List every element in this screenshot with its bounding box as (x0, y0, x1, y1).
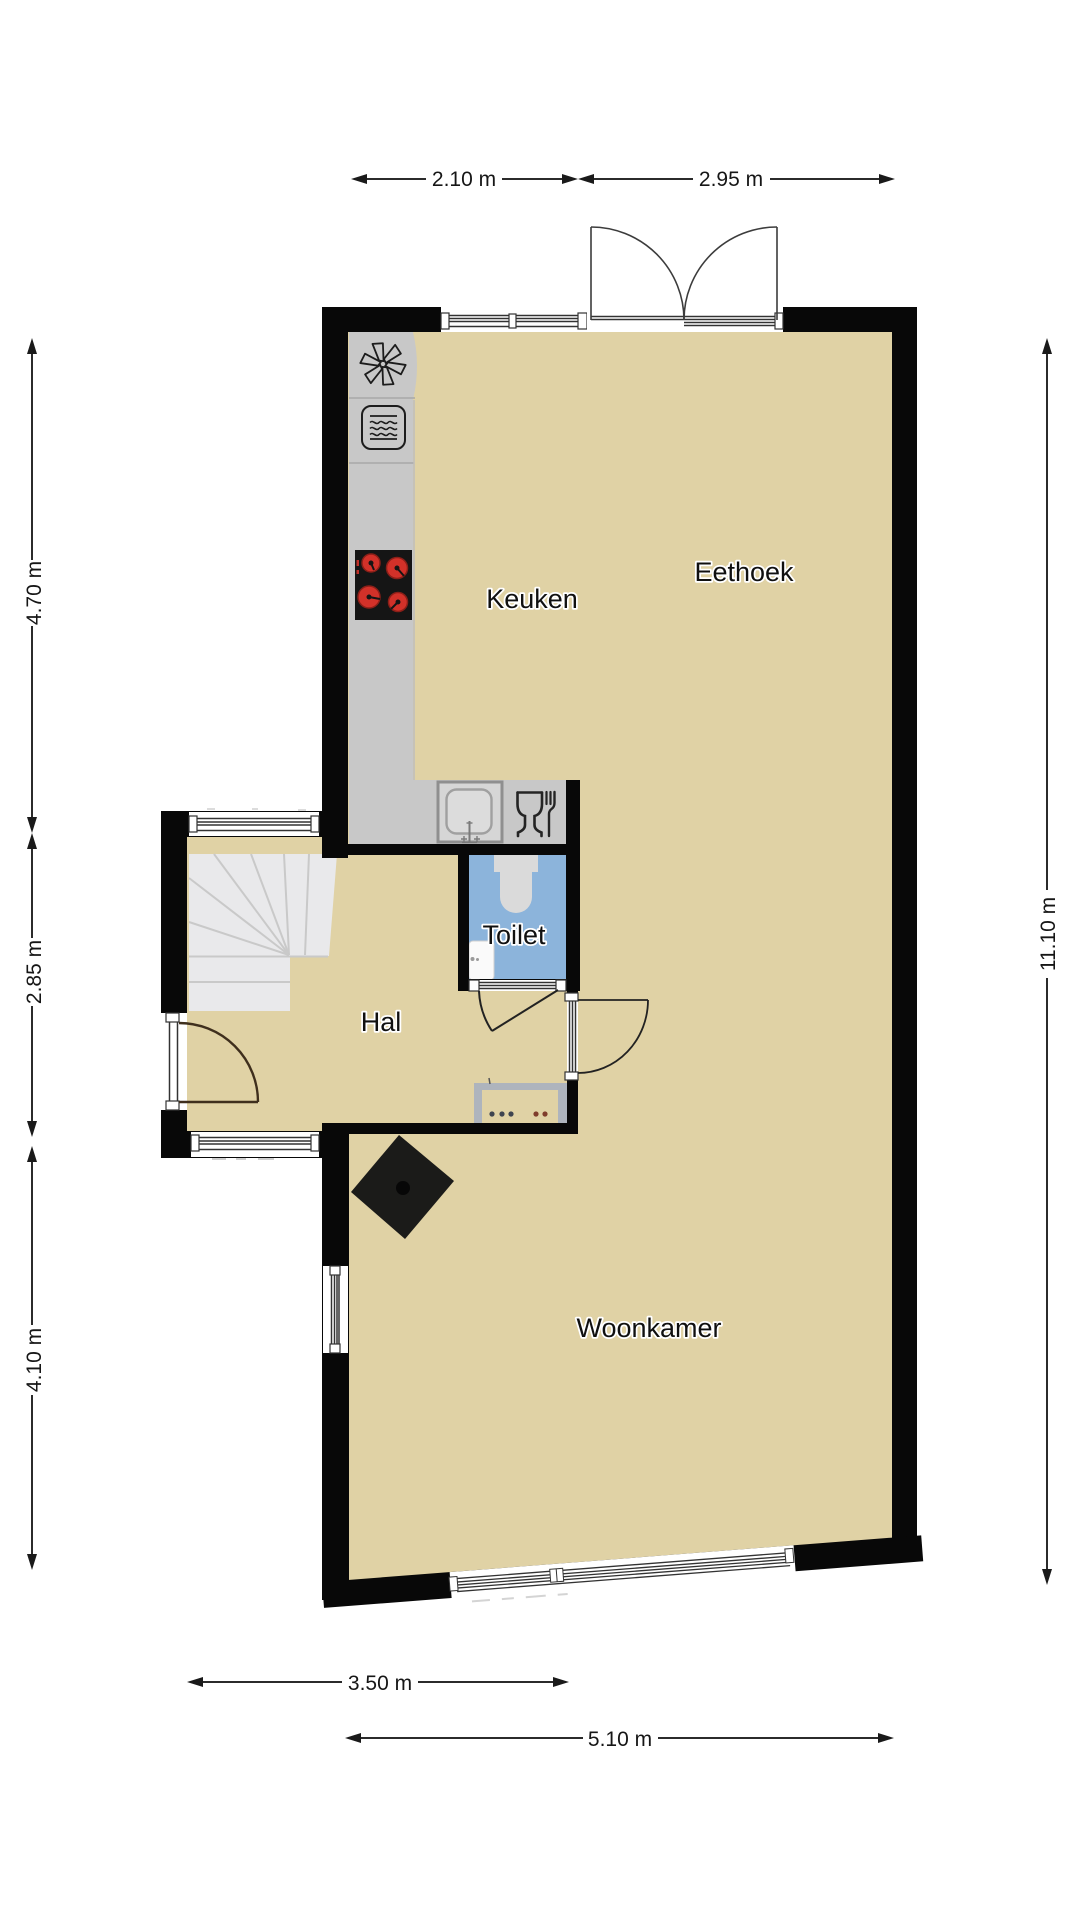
svg-text:Keuken: Keuken (486, 584, 578, 614)
svg-text:2.10 m: 2.10 m (432, 168, 496, 191)
svg-text:Toilet: Toilet (482, 920, 546, 950)
svg-text:4.10 m: 4.10 m (23, 1328, 46, 1392)
svg-text:3.50 m: 3.50 m (348, 1672, 412, 1695)
svg-text:4.70 m: 4.70 m (23, 561, 46, 625)
svg-text:Woonkamer: Woonkamer (576, 1313, 721, 1343)
svg-text:5.10 m: 5.10 m (588, 1728, 652, 1751)
svg-text:11.10 m: 11.10 m (1037, 897, 1060, 971)
svg-text:2.95 m: 2.95 m (699, 168, 763, 191)
svg-text:Eethoek: Eethoek (694, 557, 794, 587)
svg-text:2.85 m: 2.85 m (23, 940, 46, 1004)
svg-text:Hal: Hal (361, 1007, 402, 1037)
